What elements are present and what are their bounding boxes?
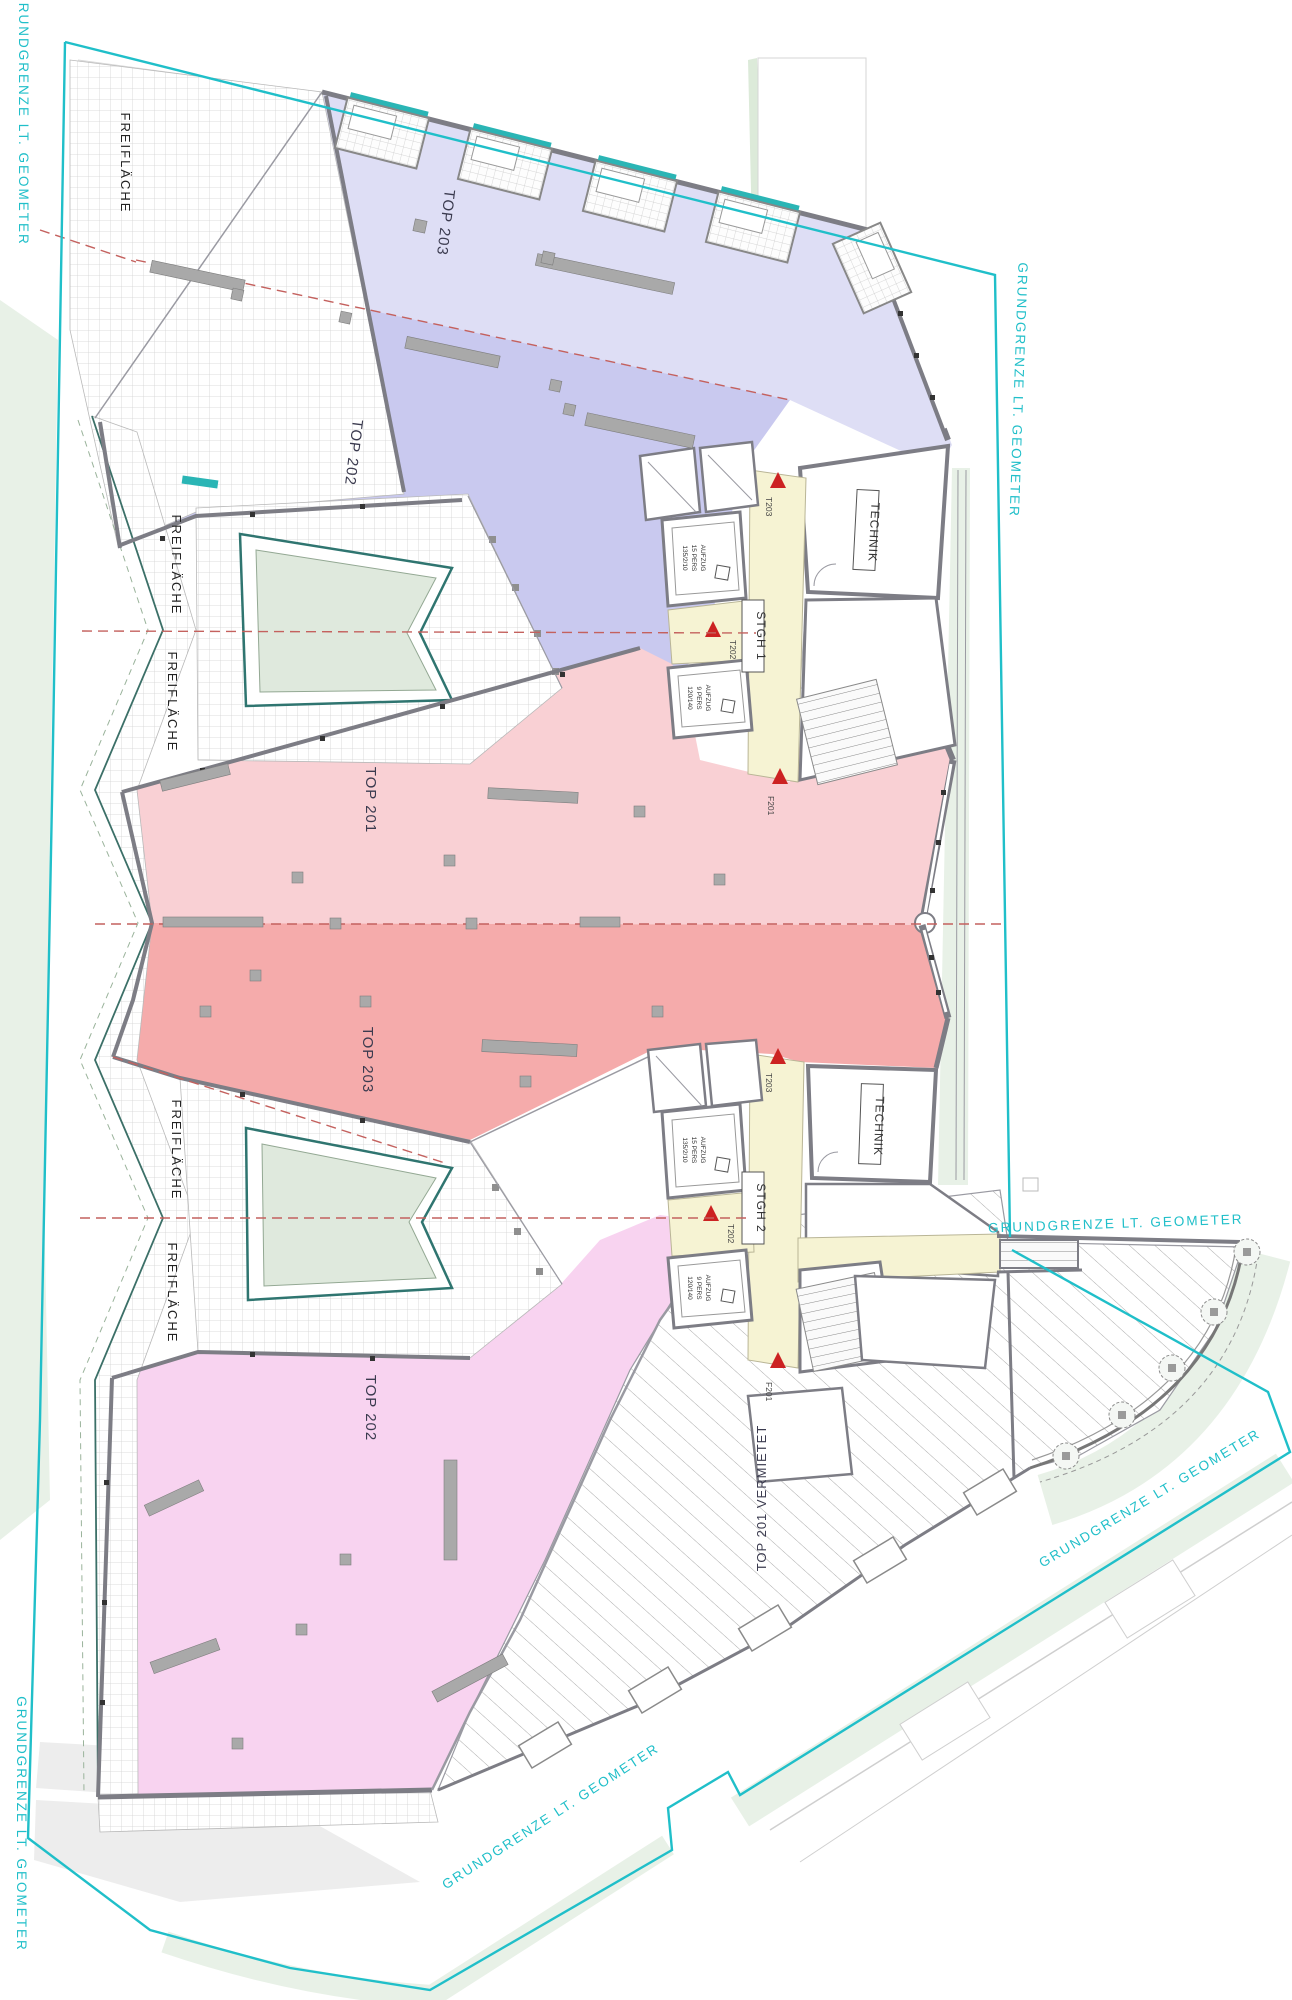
zone-label-top202-south: TOP 202	[362, 1375, 379, 1442]
elevator-1-large-line2: 15 PERS	[690, 545, 697, 572]
boundary-label-left-bottom: GRUNDGRENZE LT. GEOMETER	[14, 1696, 29, 1952]
elevator-2-small: AUFZUG 9 PERS 120/140	[668, 1250, 752, 1328]
shaft-room-2a	[648, 1044, 706, 1112]
open-space-label-1: FREIFLÄCHE	[118, 113, 133, 214]
shaft-room-1a	[640, 448, 700, 520]
open-space-label-3: FREIFLÄCHE	[165, 652, 180, 753]
elevator-1-large: AUFZUG 15 PERS 135/2/10	[662, 512, 746, 606]
open-space-label-2: FREIFLÄCHE	[169, 515, 184, 616]
elevator-2-small-line2: 9 PERS	[695, 1276, 702, 1300]
elevator-2-small-line1: AUFZUG	[704, 1275, 711, 1302]
door-label-t202-2: T202	[726, 1224, 736, 1244]
door-label-t203-2: T203	[764, 1073, 774, 1093]
elevator-1-large-line3: 135/2/10	[681, 545, 688, 571]
technik-2-label: TECHNIK	[871, 1096, 887, 1156]
elevator-1-small-line3: 120/140	[686, 686, 693, 710]
elevator-2-large-line2: 15 PERS	[690, 1137, 697, 1164]
stairwell-1-label: STGH 1	[754, 611, 768, 660]
door-label-f201-2: F201	[764, 1382, 774, 1402]
elevator-2-large-line1: AUFZUG	[699, 1137, 706, 1164]
stairwell-1-tag: STGH 1	[742, 600, 768, 672]
open-space-label-4: FREIFLÄCHE	[169, 1100, 184, 1201]
corridor-2-lobby	[668, 1192, 754, 1256]
room-below-bridge	[855, 1276, 995, 1368]
elevator-2-large-line3: 135/2/10	[681, 1137, 688, 1163]
zone-label-top203-south: TOP 203	[359, 1027, 376, 1094]
door-label-t203-1: T203	[764, 497, 774, 517]
floor-plan-drawing: AUFZUG 15 PERS 135/2/10 AUFZUG 9 PERS 12…	[0, 0, 1292, 2000]
door-label-t202-1: T202	[728, 640, 738, 660]
stairwell-2-tag: STGH 2	[742, 1172, 768, 1244]
elevator-1-large-line1: AUFZUG	[699, 545, 706, 572]
site-symbol-square	[1023, 1178, 1038, 1191]
boundary-label-right-top: GRUNDGRENZE LT. GEOMETER	[1007, 262, 1031, 518]
boundary-label-right-middle: GRUNDGRENZE LT. GEOMETER	[988, 1212, 1244, 1236]
shaft-room-2b	[706, 1040, 762, 1106]
zone-label-top201-north: TOP 201	[362, 767, 379, 834]
open-space-label-5: FREIFLÄCHE	[165, 1243, 180, 1344]
elevator-1-small: AUFZUG 9 PERS 120/140	[668, 660, 752, 738]
elevator-2-small-line3: 120/140	[686, 1276, 693, 1300]
elevator-1-small-line2: 9 PERS	[695, 686, 702, 710]
elevator-2-large: AUFZUG 15 PERS 135/2/10	[662, 1104, 746, 1198]
stairwell-2-label: STGH 2	[754, 1183, 768, 1232]
floor-plan-page: AUFZUG 15 PERS 135/2/10 AUFZUG 9 PERS 12…	[0, 0, 1292, 2000]
zone-label-top201-south: TOP 201 VERMIETET	[754, 1425, 769, 1572]
technik-1-tag: TECHNIK	[853, 489, 883, 570]
technik-2-tag: TECHNIK	[859, 1084, 887, 1165]
elevator-1-small-line1: AUFZUG	[704, 685, 711, 712]
boundary-label-left-top: GRUNDGRENZE LT. GEOMETER	[16, 0, 31, 246]
door-label-f201-1: F201	[766, 796, 776, 816]
